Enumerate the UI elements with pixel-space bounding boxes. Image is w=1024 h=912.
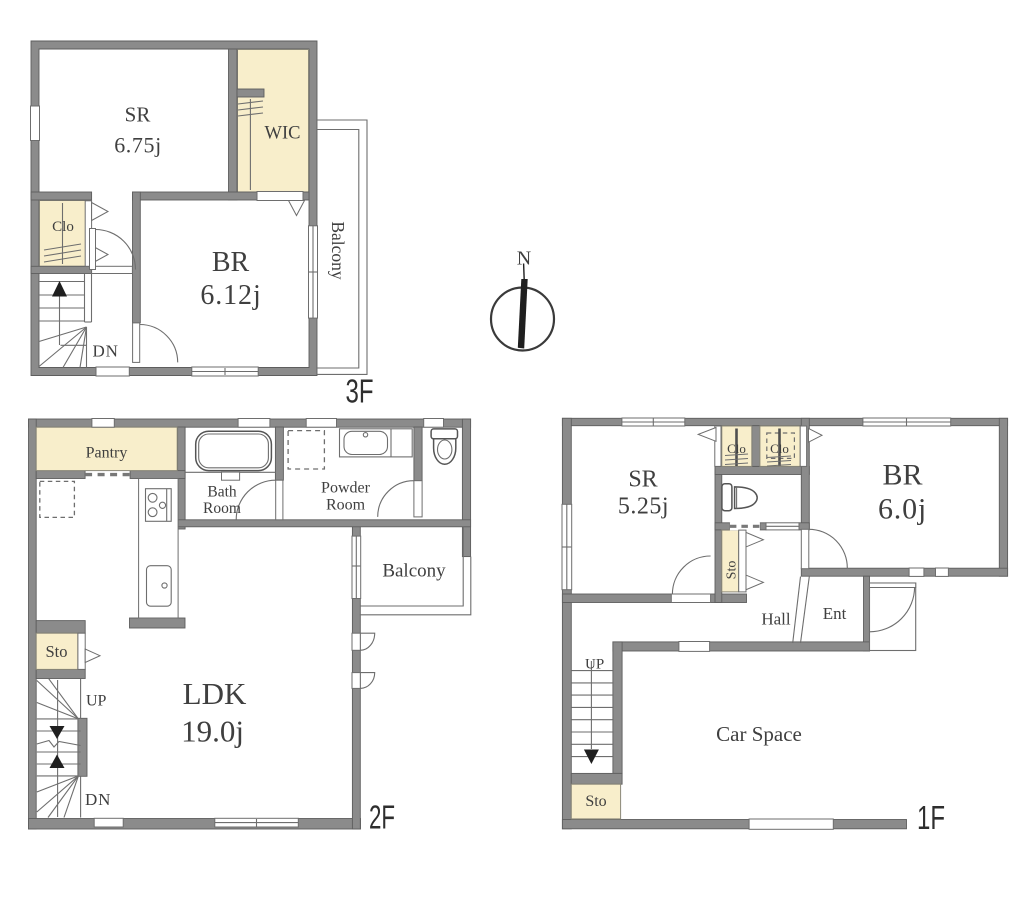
svg-text:Sto: Sto bbox=[45, 642, 67, 661]
svg-text:Bath: Bath bbox=[207, 484, 237, 501]
svg-text:Clo: Clo bbox=[727, 441, 746, 456]
svg-text:BR: BR bbox=[212, 247, 250, 278]
svg-text:Powder: Powder bbox=[321, 480, 371, 497]
svg-text:BR: BR bbox=[882, 459, 922, 492]
svg-text:Room: Room bbox=[326, 497, 366, 514]
svg-text:6.75j: 6.75j bbox=[114, 133, 162, 158]
svg-text:2F: 2F bbox=[369, 799, 395, 836]
svg-text:N: N bbox=[517, 248, 531, 270]
svg-text:Sto: Sto bbox=[585, 793, 606, 810]
svg-text:6.12j: 6.12j bbox=[200, 280, 261, 311]
svg-text:6.0j: 6.0j bbox=[878, 493, 927, 526]
svg-text:Room: Room bbox=[203, 500, 241, 517]
svg-text:Balcony: Balcony bbox=[382, 561, 446, 582]
svg-text:Sto: Sto bbox=[725, 561, 740, 580]
svg-text:UP: UP bbox=[86, 693, 107, 710]
svg-text:DN: DN bbox=[93, 342, 119, 361]
svg-text:Balcony: Balcony bbox=[328, 221, 348, 280]
svg-text:5.25j: 5.25j bbox=[618, 494, 669, 520]
svg-text:Clo: Clo bbox=[52, 219, 74, 235]
svg-text:Ent: Ent bbox=[823, 604, 847, 623]
svg-text:WIC: WIC bbox=[265, 124, 301, 144]
svg-text:1F: 1F bbox=[917, 799, 945, 836]
svg-text:SR: SR bbox=[125, 103, 151, 127]
svg-text:Hall: Hall bbox=[761, 610, 791, 629]
svg-text:Car Space: Car Space bbox=[716, 722, 802, 746]
svg-text:19.0j: 19.0j bbox=[181, 714, 244, 749]
svg-text:Clo: Clo bbox=[770, 441, 789, 456]
svg-text:DN: DN bbox=[85, 790, 111, 809]
svg-text:SR: SR bbox=[628, 467, 657, 493]
svg-text:Pantry: Pantry bbox=[86, 445, 128, 462]
svg-text:LDK: LDK bbox=[183, 676, 247, 711]
svg-text:UP: UP bbox=[585, 657, 604, 673]
svg-text:3F: 3F bbox=[346, 373, 374, 410]
